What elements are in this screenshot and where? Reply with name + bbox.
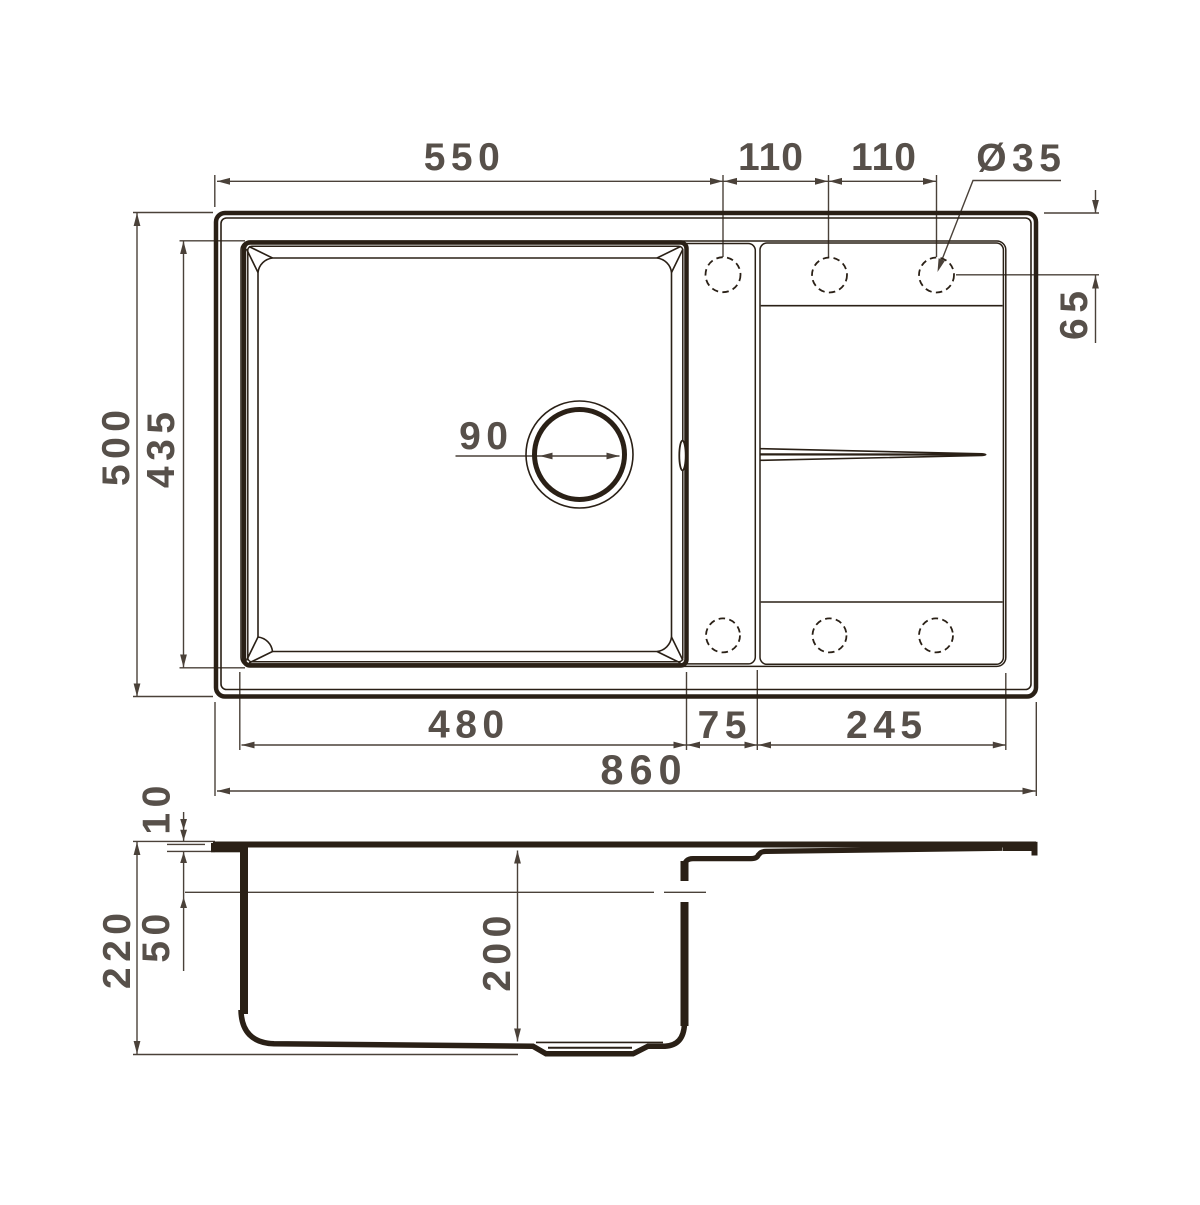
svg-text:50: 50 (135, 908, 178, 962)
svg-text:245: 245 (846, 704, 928, 747)
svg-text:110: 110 (738, 136, 804, 179)
svg-text:65: 65 (1053, 286, 1096, 340)
svg-text:860: 860 (600, 746, 687, 793)
svg-text:10: 10 (135, 780, 178, 834)
svg-text:435: 435 (140, 407, 183, 489)
svg-text:550: 550 (424, 136, 506, 179)
svg-text:200: 200 (476, 910, 519, 992)
svg-text:220: 220 (96, 908, 139, 990)
svg-text:75: 75 (698, 704, 752, 747)
svg-text:Ø35: Ø35 (976, 137, 1066, 180)
svg-text:500: 500 (95, 405, 138, 487)
svg-text:90: 90 (459, 415, 513, 458)
svg-text:110: 110 (851, 136, 917, 179)
svg-text:480: 480 (428, 704, 510, 747)
